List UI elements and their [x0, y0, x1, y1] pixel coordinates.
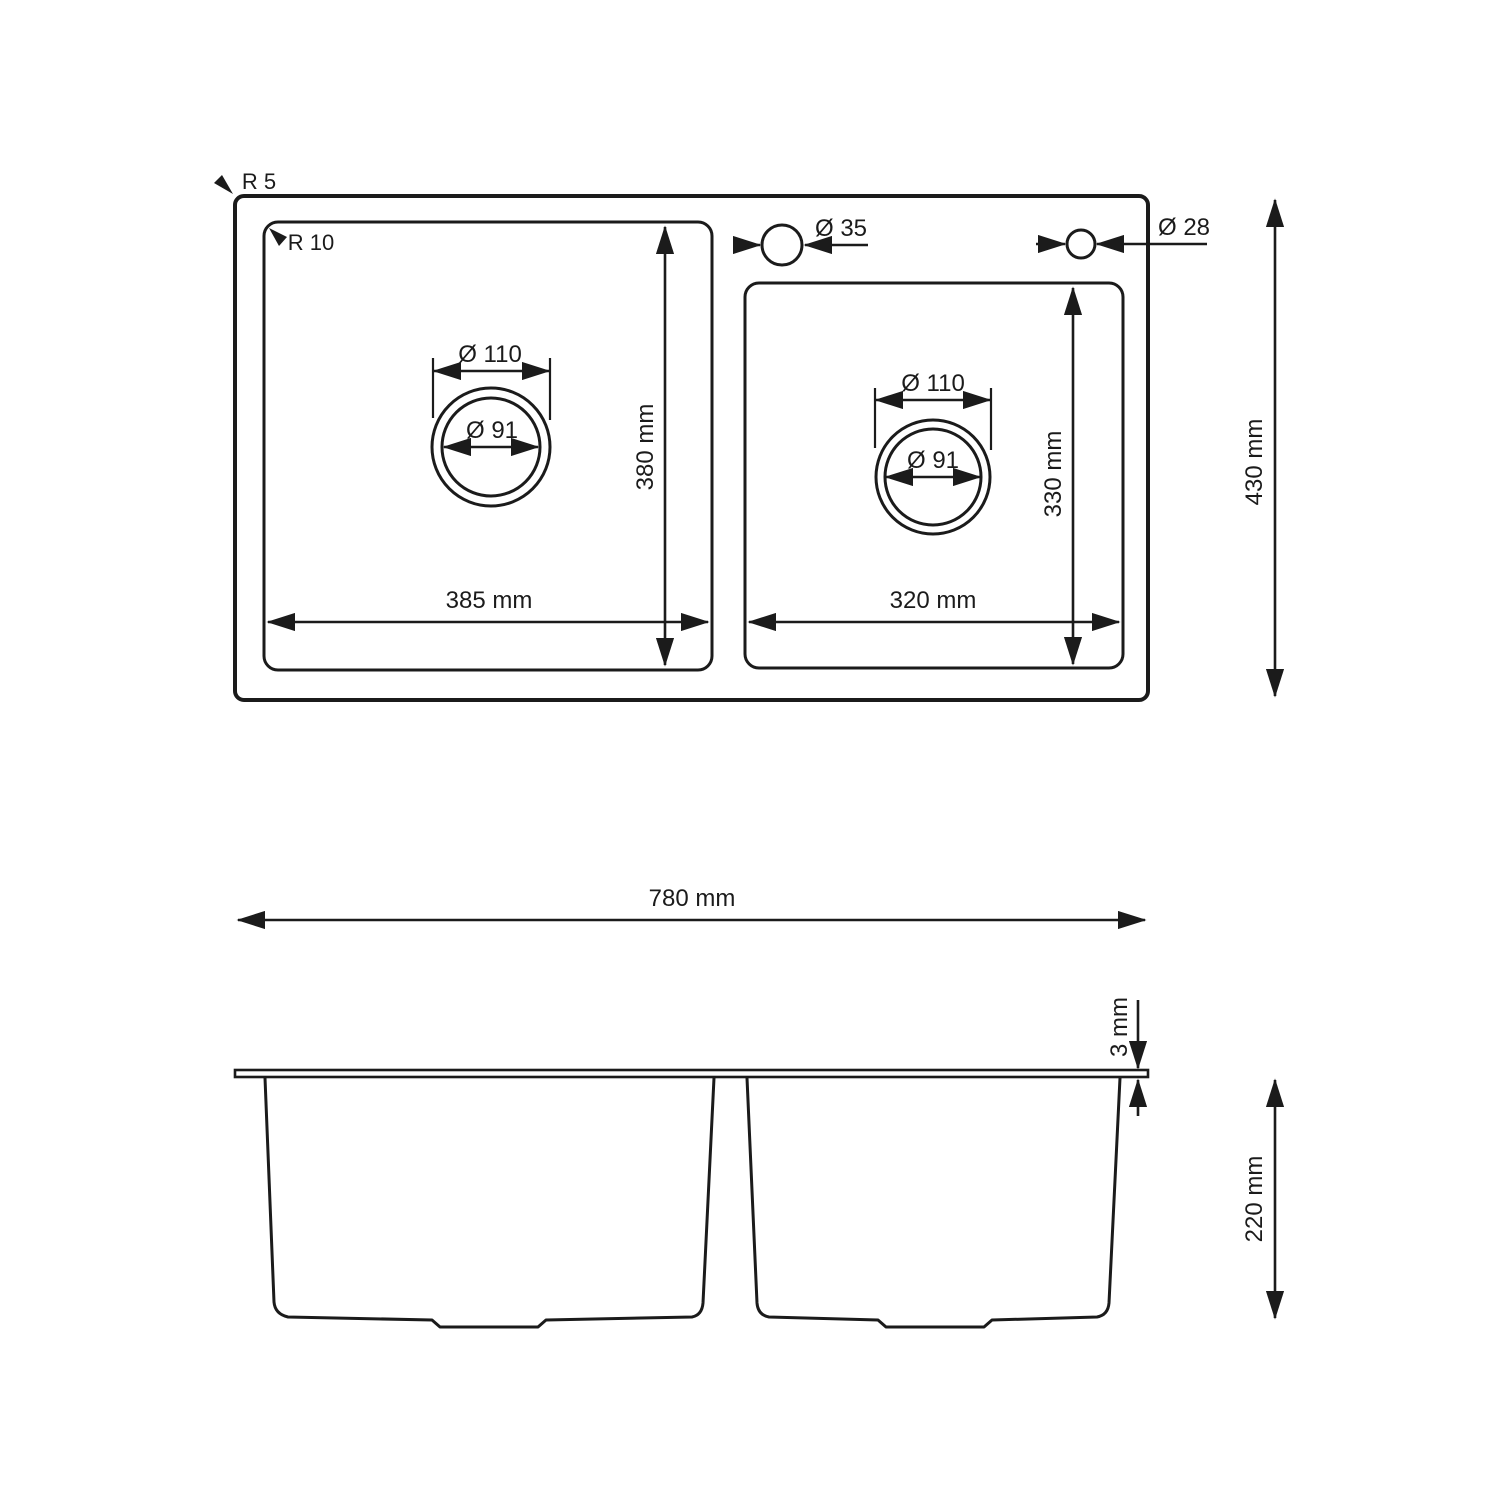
label-bowl-height: 220 mm — [1243, 1156, 1267, 1243]
label-rim-thickness: 3 mm — [1108, 997, 1132, 1057]
label-outer-corner-radius: R 5 — [242, 171, 276, 193]
label-right-bowl-depth: 330 mm — [1042, 431, 1066, 518]
label-left-bowl-width: 385 mm — [446, 589, 533, 613]
section-right-bowl-profile — [747, 1078, 1120, 1327]
label-overall-depth: 430 mm — [1243, 419, 1267, 506]
label-faucet-hole-main: Ø 35 — [815, 217, 867, 241]
label-right-bowl-width: 320 mm — [890, 589, 977, 613]
label-left-drain-outer: Ø 110 — [458, 343, 522, 367]
label-overall-width: 780 mm — [649, 887, 736, 911]
sink-technical-drawing: R 5 R 10 Ø 35 Ø 28 Ø 110 Ø 91 385 mm 380… — [0, 0, 1500, 1500]
drawing-linework — [0, 0, 1500, 1500]
inner-corner-pointer-icon — [269, 228, 287, 246]
faucet-hole-secondary — [1067, 230, 1095, 258]
label-faucet-hole-secondary: Ø 28 — [1158, 216, 1210, 240]
label-right-drain-outer: Ø 110 — [901, 372, 965, 396]
label-left-drain-inner: Ø 91 — [466, 419, 518, 443]
sink-outer-outline — [235, 196, 1148, 700]
label-left-bowl-depth: 380 mm — [634, 404, 658, 491]
section-rim-plate — [235, 1070, 1148, 1077]
section-left-bowl-profile — [265, 1078, 714, 1327]
faucet-hole-main — [762, 225, 802, 265]
label-right-drain-inner: Ø 91 — [907, 449, 959, 473]
label-inner-corner-radius: R 10 — [288, 232, 334, 254]
outer-corner-pointer-icon — [214, 175, 233, 194]
